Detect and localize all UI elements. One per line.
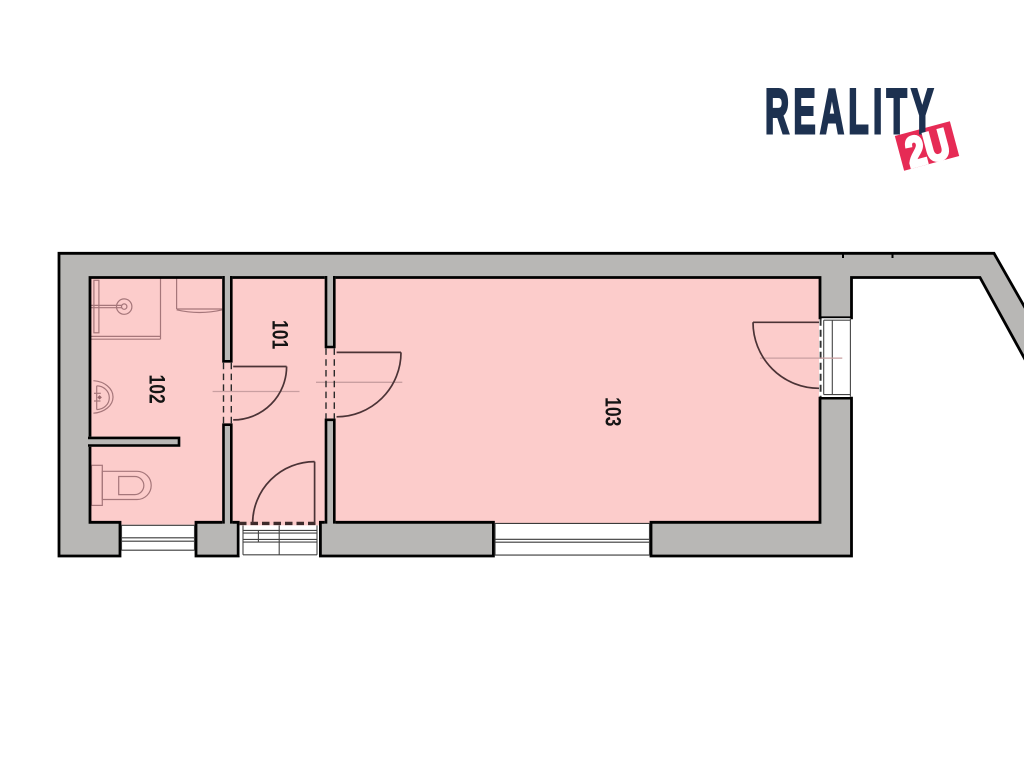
svg-text:101: 101 xyxy=(267,320,292,349)
svg-text:102: 102 xyxy=(144,374,169,403)
svg-text:103: 103 xyxy=(600,397,625,426)
